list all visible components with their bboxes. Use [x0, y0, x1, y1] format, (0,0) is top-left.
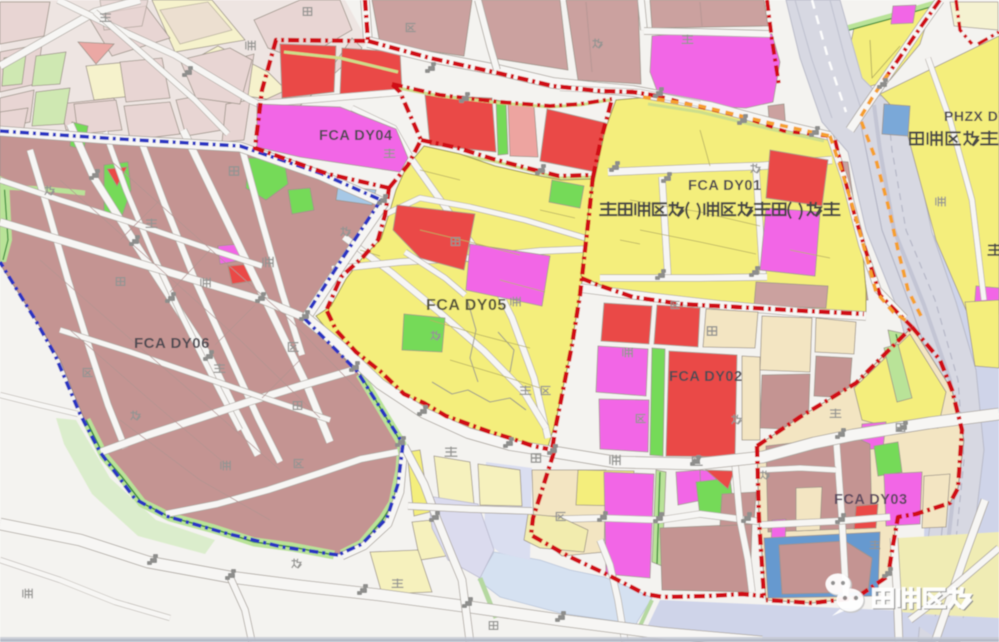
svg-text:FCA DY02: FCA DY02: [669, 369, 743, 385]
svg-text:PHZX DY: PHZX DY: [944, 108, 999, 124]
svg-text:FCA DY06: FCA DY06: [134, 335, 210, 352]
svg-text:FCA DY03: FCA DY03: [834, 492, 908, 508]
svg-text:FCA DY05: FCA DY05: [426, 297, 507, 314]
svg-text:FCA DY04: FCA DY04: [319, 128, 393, 144]
svg-text:FCA DY01: FCA DY01: [688, 178, 762, 194]
